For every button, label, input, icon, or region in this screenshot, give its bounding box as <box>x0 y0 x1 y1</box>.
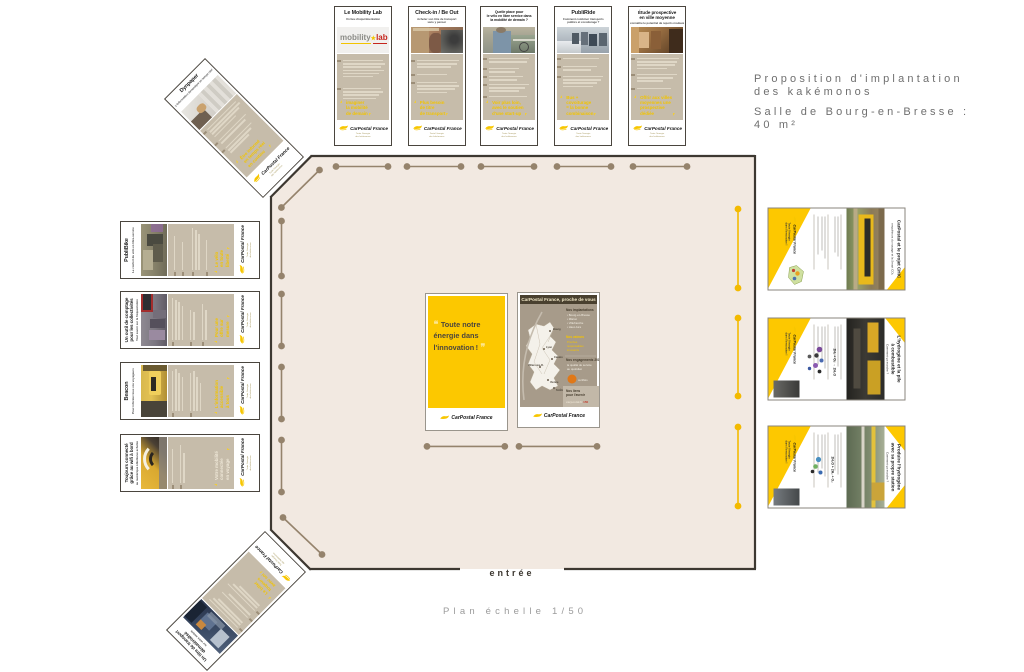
svg-text:pour l'avenir: pour l'avenir <box>566 393 586 397</box>
svg-text:Bourg: Bourg <box>553 327 561 331</box>
svg-text:• Haut-Jura: • Haut-Jura <box>567 325 581 329</box>
svg-text:Nos implantations: Nos implantations <box>566 308 594 312</box>
svg-text:Vienne: Vienne <box>550 380 559 384</box>
svg-text:Caluire: Caluire <box>554 355 563 359</box>
svg-text:innovants: innovants <box>567 348 580 352</box>
svg-text:certifiés: certifiés <box>578 378 588 382</box>
svg-text:Nos valeurs: Nos valeurs <box>566 335 584 339</box>
svg-text:carpostal.fr 150: carpostal.fr 150 <box>566 400 589 404</box>
svg-text:Lyon: Lyon <box>546 345 553 349</box>
svg-text:au quotidien: au quotidien <box>567 367 583 371</box>
svg-text:Villars-les-D.: Villars-les-D. <box>528 363 544 367</box>
svg-text:Nos engagements 2015: Nos engagements 2015 <box>566 358 599 362</box>
